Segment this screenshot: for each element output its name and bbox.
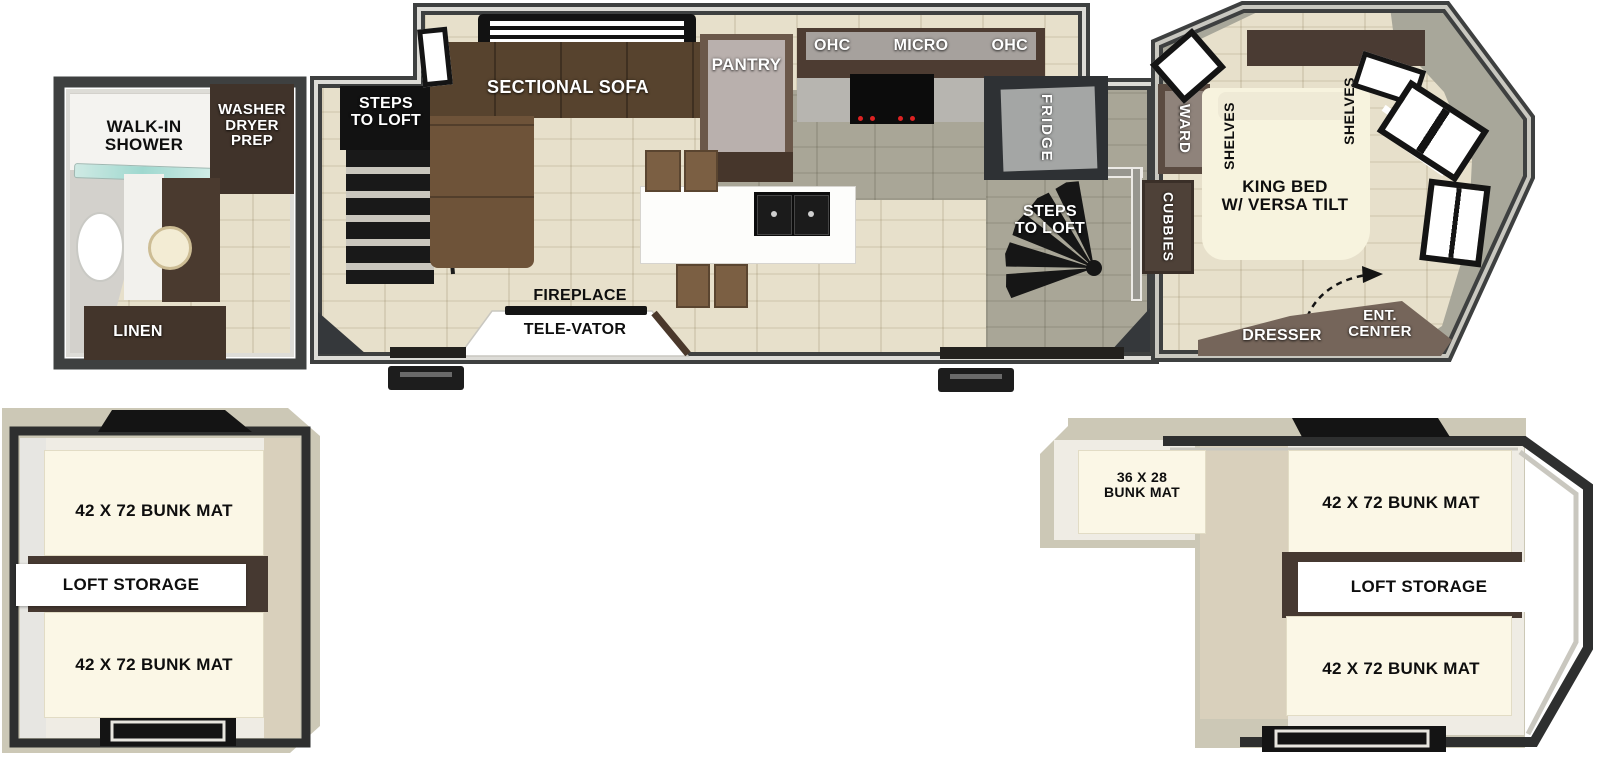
sectional-sofa-chaise — [430, 116, 534, 268]
bedroom-window — [1419, 179, 1491, 268]
cooktop-knob — [910, 116, 915, 121]
micro-label: MICRO — [894, 38, 949, 55]
loft-right-storage-label: LOFT STORAGE — [1351, 578, 1487, 596]
loft-left-bunk-bottom-label: 42 X 72 BUNK MAT — [48, 656, 260, 674]
cubbies-label: CUBBIES — [1161, 192, 1176, 262]
cooktop-knob — [898, 116, 903, 121]
stool — [676, 264, 710, 308]
stool — [645, 150, 681, 192]
televator-label: TELE-VATOR — [495, 322, 655, 339]
cooktop-knob — [858, 116, 863, 121]
stairs-treads — [346, 150, 434, 284]
ohc-left-label: OHC — [814, 38, 850, 55]
cooktop-knob — [870, 116, 875, 121]
entry-steps — [388, 366, 1014, 392]
washer-dryer-label: WASHER DRYER PREP — [212, 102, 292, 149]
loft-left-bunk-top-label: 42 X 72 BUNK MAT — [48, 502, 260, 520]
island-sink — [754, 192, 830, 236]
king-bed-label: KING BED W/ VERSA TILT — [1200, 178, 1370, 213]
loft-right-bunk-bottom-label: 42 X 72 BUNK MAT — [1298, 660, 1504, 678]
faucet-dot — [771, 211, 777, 217]
ward-label: WARD — [1176, 104, 1192, 154]
sink-bowl — [148, 226, 192, 270]
linen-label: LINEN — [88, 324, 188, 341]
stool — [684, 150, 718, 192]
ent-center-label: ENT. CENTER — [1340, 308, 1420, 339]
steps-to-loft-left-label: STEPS TO LOFT — [336, 96, 436, 129]
fan-stairs — [1005, 181, 1102, 298]
skylight — [1292, 418, 1450, 437]
loft-right-bunk-small-label: 36 X 28 BUNK MAT — [1078, 470, 1206, 499]
fridge-label: FRIDGE — [1038, 94, 1054, 163]
shelves-left-label: SHELVES — [1222, 102, 1237, 170]
faucet-dot — [808, 211, 814, 217]
shelves-left: SHELVES — [1216, 84, 1242, 188]
stool — [714, 264, 748, 308]
fridge: FRIDGE — [984, 76, 1108, 180]
steps-to-loft-right-label: STEPS TO LOFT — [1002, 204, 1098, 237]
loft-right-bunk-top-label: 42 X 72 BUNK MAT — [1298, 494, 1504, 512]
ohc-micro-ohc-strip: OHC MICRO OHC — [806, 32, 1036, 60]
fireplace-label: FIREPLACE — [505, 288, 655, 305]
loft-left-storage-box: LOFT STORAGE — [16, 564, 246, 606]
ohc-right-label: OHC — [992, 38, 1028, 55]
dresser-label: DRESSER — [1230, 328, 1334, 345]
skylight — [98, 410, 252, 432]
loft-left-storage-label: LOFT STORAGE — [63, 576, 199, 594]
rv-floorplan: WALK-IN SHOWER WASHER DRYER PREP LINEN S… — [0, 0, 1600, 757]
walk-in-shower-label: WALK-IN SHOWER — [64, 118, 224, 153]
cubbies: CUBBIES — [1142, 180, 1194, 274]
loft-right-storage-box: LOFT STORAGE — [1298, 562, 1540, 612]
sectional-sofa-label: SECTIONAL SOFA — [448, 78, 688, 97]
pantry-label: PANTRY — [700, 56, 793, 74]
toilet — [76, 212, 124, 282]
slide-window — [417, 27, 453, 88]
